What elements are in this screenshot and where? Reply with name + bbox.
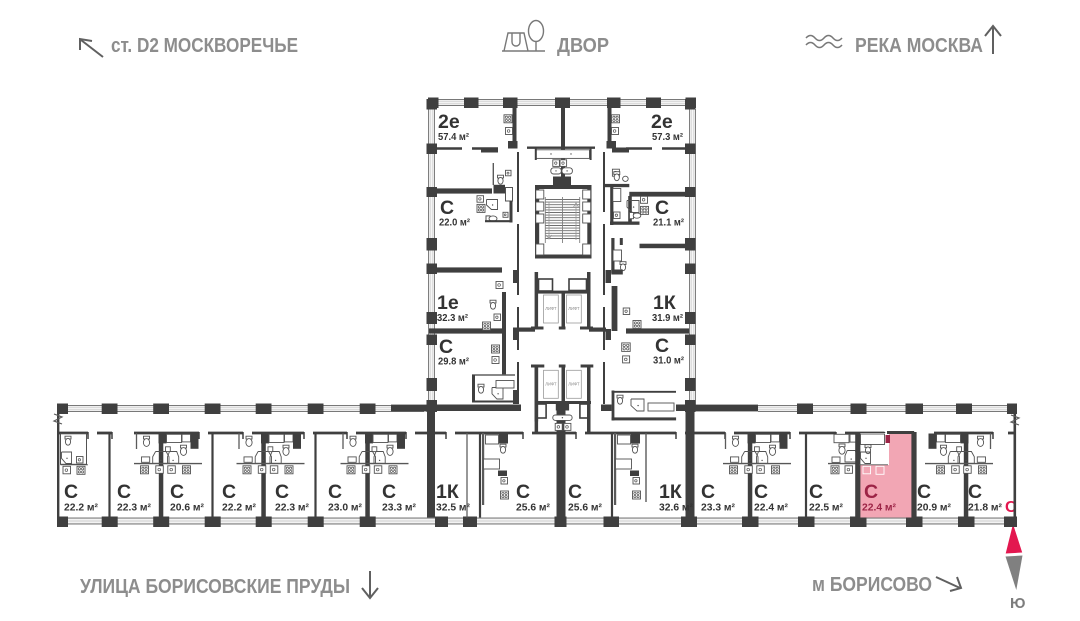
svg-text:22.0 м²: 22.0 м²	[439, 217, 470, 229]
svg-text:22.4 м²: 22.4 м²	[862, 502, 896, 514]
svg-text:ЛИФТ: ЛИФТ	[545, 381, 557, 386]
svg-text:С: С	[328, 481, 342, 503]
svg-text:м БОРИСОВО: м БОРИСОВО	[812, 573, 932, 596]
svg-text:ЛИФТ: ЛИФТ	[568, 306, 580, 311]
svg-text:С: С	[117, 481, 131, 503]
svg-text:С: С	[809, 481, 823, 503]
svg-text:21.1 м²: 21.1 м²	[653, 217, 684, 229]
svg-text:2е: 2е	[438, 111, 460, 133]
svg-text:32.6 м²: 32.6 м²	[659, 502, 693, 514]
svg-text:УЛИЦА БОРИСОВСКИЕ ПРУДЫ: УЛИЦА БОРИСОВСКИЕ ПРУДЫ	[80, 575, 350, 598]
svg-text:32.3 м²: 32.3 м²	[437, 312, 468, 324]
svg-text:25.6 м²: 25.6 м²	[516, 502, 550, 514]
svg-text:25.6 м²: 25.6 м²	[568, 502, 602, 514]
svg-text:2е: 2е	[651, 111, 673, 133]
svg-text:С: С	[968, 481, 982, 503]
svg-text:57.3 м²: 57.3 м²	[652, 131, 683, 143]
svg-text:22.5 м²: 22.5 м²	[809, 502, 843, 514]
svg-text:С: С	[64, 481, 78, 503]
svg-text:20.6 м²: 20.6 м²	[170, 502, 204, 514]
svg-text:22.2 м²: 22.2 м²	[64, 502, 98, 514]
svg-text:22.2 м²: 22.2 м²	[222, 502, 256, 514]
svg-text:ст. D2 МОСКВОРЕЧЬЕ: ст. D2 МОСКВОРЕЧЬЕ	[111, 34, 298, 57]
svg-text:С: С	[701, 481, 715, 503]
svg-text:1К: 1К	[653, 292, 676, 314]
svg-text:С: С	[170, 481, 184, 503]
svg-text:1К: 1К	[436, 481, 459, 503]
svg-text:23.0 м²: 23.0 м²	[328, 502, 362, 514]
svg-text:21.8 м²: 21.8 м²	[968, 502, 1002, 514]
svg-text:20.9 м²: 20.9 м²	[917, 502, 951, 514]
svg-text:ДВОР: ДВОР	[557, 34, 609, 57]
svg-text:ЛИФТ: ЛИФТ	[568, 381, 580, 386]
svg-text:23.3 м²: 23.3 м²	[382, 502, 416, 514]
svg-text:С: С	[275, 481, 289, 503]
svg-text:С: С	[864, 481, 878, 503]
svg-text:57.4 м²: 57.4 м²	[438, 131, 469, 143]
svg-text:22.4 м²: 22.4 м²	[754, 502, 788, 514]
svg-text:31.9 м²: 31.9 м²	[652, 312, 683, 324]
svg-text:С: С	[754, 481, 768, 503]
svg-text:РЕКА МОСКВА: РЕКА МОСКВА	[855, 34, 983, 57]
svg-text:Ю: Ю	[1010, 595, 1025, 612]
svg-text:23.3 м²: 23.3 м²	[701, 502, 735, 514]
svg-text:22.3 м²: 22.3 м²	[117, 502, 151, 514]
svg-text:С: С	[222, 481, 236, 503]
svg-text:31.0 м²: 31.0 м²	[653, 355, 684, 367]
svg-text:С: С	[917, 481, 931, 503]
svg-text:29.8 м²: 29.8 м²	[438, 356, 469, 368]
svg-text:1К: 1К	[659, 481, 682, 503]
svg-text:С: С	[568, 481, 582, 503]
svg-text:32.5 м²: 32.5 м²	[436, 502, 470, 514]
svg-text:1е: 1е	[437, 292, 459, 314]
svg-text:ЛИФТ: ЛИФТ	[545, 306, 557, 311]
svg-text:С: С	[516, 481, 530, 503]
svg-text:22.3 м²: 22.3 м²	[275, 502, 309, 514]
svg-text:С: С	[382, 481, 396, 503]
